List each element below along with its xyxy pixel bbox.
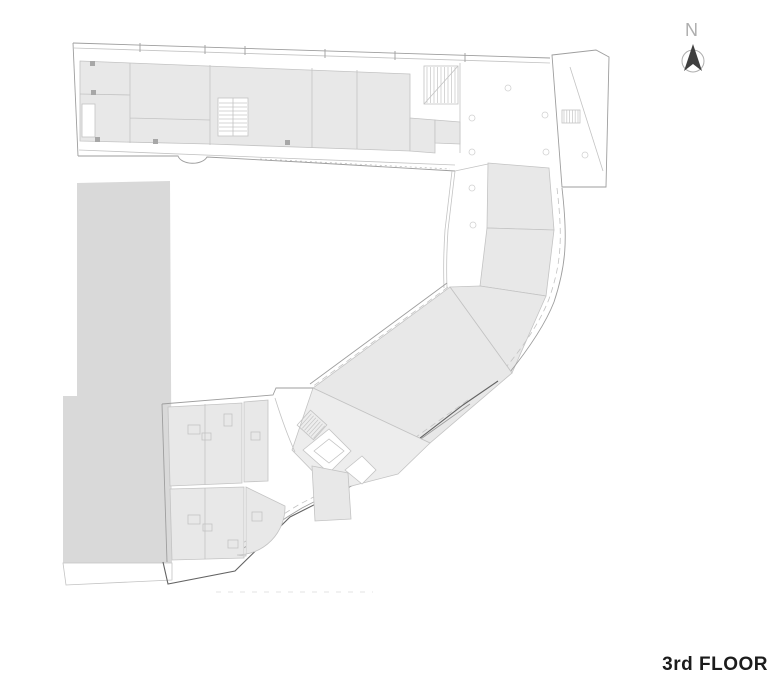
stair-room — [562, 110, 580, 123]
band-room-upper — [487, 163, 554, 230]
pier — [285, 140, 290, 145]
hall-link-line — [455, 164, 488, 171]
stairwell-west — [218, 98, 248, 136]
floor-plan-drawing — [0, 0, 780, 687]
stairwell-east — [424, 66, 458, 104]
column — [582, 152, 588, 158]
room-n-mid — [244, 400, 268, 482]
mass-base-strip — [63, 563, 172, 585]
pier — [153, 139, 158, 144]
band-room-lower — [480, 228, 554, 296]
north-label: N — [685, 20, 699, 41]
hall-west-wall-outer — [447, 171, 455, 288]
pier — [91, 90, 96, 95]
stair-treads — [564, 110, 578, 123]
top-wing — [73, 43, 550, 171]
west-end-wall — [73, 43, 78, 156]
stairwell-block — [562, 110, 580, 123]
pier — [95, 137, 100, 142]
room-sw — [170, 487, 244, 560]
building-mass-shape — [63, 181, 172, 563]
room-bridge — [312, 466, 351, 521]
west-small-room — [82, 104, 95, 137]
small-room-b — [435, 120, 460, 144]
pier — [90, 61, 95, 66]
entrance-corridor-line — [275, 398, 295, 452]
column — [543, 149, 549, 155]
south-facade — [78, 156, 455, 171]
small-room-a — [410, 118, 435, 153]
floor-title: 3rd FLOOR — [662, 654, 768, 676]
column — [469, 115, 475, 121]
column — [505, 85, 511, 91]
block-top-outline — [162, 388, 313, 404]
block-outline — [552, 50, 609, 187]
column — [469, 149, 475, 155]
column — [469, 185, 475, 191]
column — [542, 112, 548, 118]
left-building-mass — [63, 181, 172, 585]
south-facade-inner — [79, 150, 455, 165]
column — [470, 222, 476, 228]
floor-plan-page: N 3rd FLOOR — [0, 0, 780, 687]
top-right-block — [552, 50, 609, 187]
